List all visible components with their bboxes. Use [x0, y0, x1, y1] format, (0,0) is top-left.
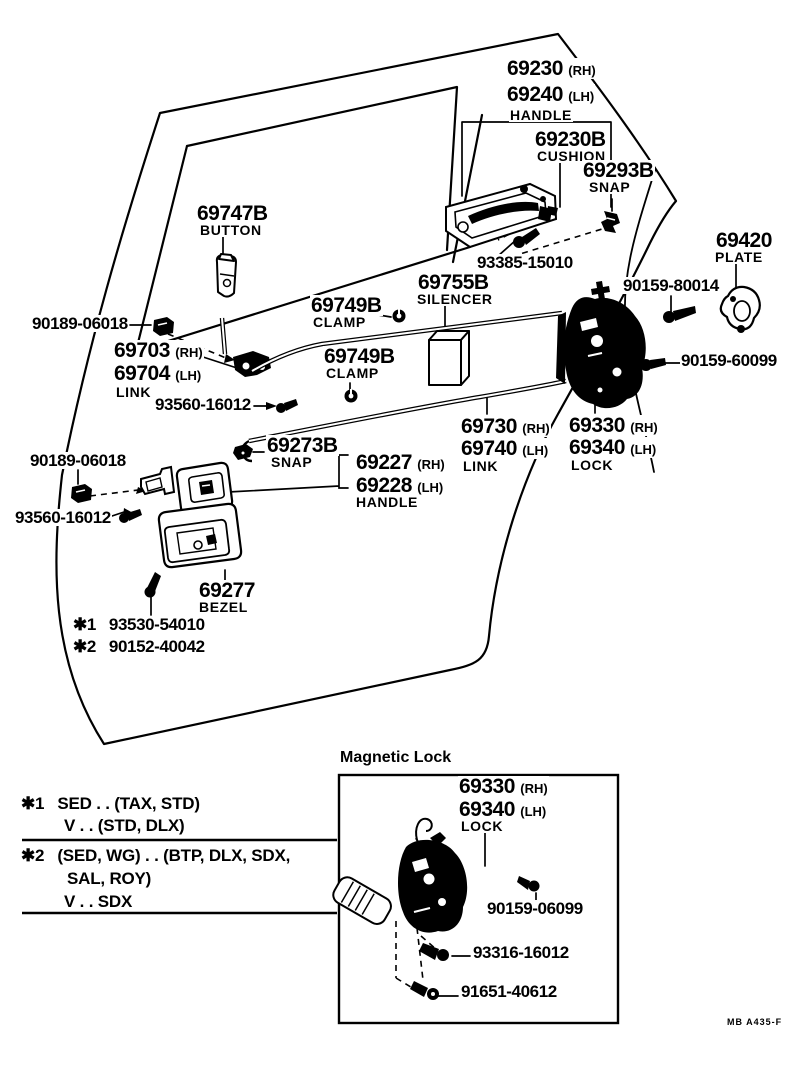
part-name-lock-2: LOCK	[460, 819, 504, 833]
legend-text: (SED, WG) . . (BTP, DLX, SDX,	[57, 846, 290, 865]
part-number: 69730	[461, 415, 517, 438]
side-suffix: (RH)	[568, 63, 595, 78]
part-number: 69330	[569, 414, 625, 437]
part-label-90189-06018-2: 90189-06018	[29, 452, 127, 469]
side-suffix: (LH)	[630, 442, 656, 457]
part-label-69730: 69730 (RH)	[460, 416, 551, 437]
side-suffix: (LH)	[520, 804, 546, 819]
screw-90159-60099-part	[640, 358, 666, 371]
part-label-90159-06099: 90159-06099	[486, 900, 584, 917]
part-number: 69704	[114, 362, 170, 385]
star-2-marker: ✱2	[73, 638, 96, 655]
part-label-69703: 69703 (RH)	[113, 340, 204, 361]
part-number: 93530-54010	[109, 615, 205, 634]
screw-93560-upper-part	[276, 399, 298, 413]
star-1-marker: ✱1	[73, 616, 96, 633]
inset-title: Magnetic Lock	[339, 750, 452, 766]
part-label-90189-06018-1: 90189-06018	[31, 315, 129, 332]
part-name-handle: HANDLE	[509, 108, 573, 122]
side-suffix: (RH)	[175, 345, 202, 360]
part-number: 69703	[114, 339, 170, 362]
part-label-93316-16012: 93316-16012	[472, 944, 570, 961]
part-name-clamp-1: CLAMP	[312, 315, 367, 329]
part-number: 90152-40042	[109, 637, 205, 656]
clamp-part-1	[393, 309, 406, 323]
part-label-69240: 69240 (LH)	[506, 84, 595, 105]
star-2-marker: ✱2	[21, 847, 44, 864]
part-label-91651-40612: 91651-40612	[460, 983, 558, 1000]
part-name-link-1: LINK	[115, 385, 152, 399]
nut-90189-lower-part	[71, 484, 92, 503]
part-label-69340: 69340 (LH)	[568, 437, 657, 458]
part-name-plate: PLATE	[714, 250, 764, 264]
side-suffix: (LH)	[568, 89, 594, 104]
bezel-part	[159, 504, 241, 567]
legend-row-1a: ✱1SED . . (TAX, STD)	[20, 795, 201, 812]
part-number: 69240	[507, 83, 563, 106]
part-name-silencer: SILENCER	[416, 292, 494, 306]
screw-91651-part	[410, 981, 439, 1000]
legend-row-2c: V . . SDX	[63, 893, 133, 910]
screw-star-part	[145, 572, 162, 598]
link-69703-part	[222, 318, 271, 377]
silencer-part	[429, 331, 469, 385]
part-label-69749B-1: 69749B	[310, 295, 383, 316]
part-label-69273B: 69273B	[266, 435, 339, 456]
part-label-69227: 69227 (RH)	[355, 452, 446, 473]
striker-plate-part	[721, 287, 760, 333]
screw-93560-lower-part	[119, 509, 142, 523]
part-number: 69340	[569, 436, 625, 459]
screw-90159-80014-part	[663, 306, 696, 323]
part-label-90159-80014: 90159-80014	[622, 277, 720, 294]
star-1-marker: ✱1	[21, 795, 44, 812]
part-label-69230: 69230 (RH)	[506, 58, 597, 79]
button-part	[217, 254, 236, 297]
part-name-bezel: BEZEL	[198, 600, 249, 614]
side-suffix: (LH)	[175, 368, 201, 383]
part-label-69420: 69420	[715, 230, 773, 251]
side-suffix: (RH)	[520, 781, 547, 796]
part-name-handle-2: HANDLE	[355, 495, 419, 509]
clamp-part-2	[345, 389, 358, 403]
nut-90189-upper-part	[153, 317, 174, 336]
part-number: 69227	[356, 451, 412, 474]
part-label-star2: ✱290152-40042	[72, 638, 206, 655]
legend-row-1b: V . . (STD, DLX)	[63, 817, 186, 834]
part-name-clamp-2: CLAMP	[325, 366, 380, 380]
part-label-69228: 69228 (LH)	[355, 475, 444, 496]
part-name-snap-2: SNAP	[270, 455, 313, 469]
side-suffix: (RH)	[417, 457, 444, 472]
side-suffix: (RH)	[630, 420, 657, 435]
part-number: 69740	[461, 437, 517, 460]
part-name-button: BUTTON	[199, 223, 263, 237]
part-label-69230B: 69230B	[534, 129, 607, 150]
parts-diagram-page: 69230 (RH) 69240 (LH) HANDLE 69230B CUSH…	[0, 0, 792, 1082]
page-code: MB A435-F	[726, 1018, 783, 1027]
part-number: 69330	[459, 775, 515, 798]
part-label-93560-16012-2: 93560-16012	[14, 509, 112, 526]
diagram-artwork	[0, 0, 792, 1082]
part-label-69330: 69330 (RH)	[568, 415, 659, 436]
legend-row-2b: SAL, ROY)	[66, 870, 152, 887]
side-suffix: (RH)	[522, 421, 549, 436]
rod-upper	[252, 313, 562, 371]
part-label-star1: ✱193530-54010	[72, 616, 206, 633]
part-label-69749B-2: 69749B	[323, 346, 396, 367]
part-label-93560-16012-1: 93560-16012	[154, 396, 252, 413]
part-label-69330-inset: 69330 (RH)	[458, 776, 549, 797]
part-name-lock-1: LOCK	[570, 458, 614, 472]
inset-lock-part	[330, 819, 467, 933]
part-label-69340-inset: 69340 (LH)	[458, 799, 547, 820]
side-suffix: (LH)	[417, 480, 443, 495]
part-label-93385-15010: 93385-15010	[476, 254, 574, 271]
legend-row-2a: ✱2(SED, WG) . . (BTP, DLX, SDX,	[20, 847, 291, 864]
part-label-90159-60099: 90159-60099	[680, 352, 778, 369]
snap-69273B-part	[233, 444, 253, 460]
part-label-69293B: 69293B	[582, 160, 655, 181]
screw-90159-06099-part	[517, 876, 540, 892]
part-label-69704: 69704 (LH)	[113, 363, 202, 384]
part-label-69755B: 69755B	[417, 272, 490, 293]
part-name-snap: SNAP	[588, 180, 631, 194]
part-label-69277: 69277	[198, 580, 256, 601]
part-number: 69230	[507, 57, 563, 80]
screw-93316-part	[419, 943, 449, 961]
lock-assembly-part	[556, 281, 646, 408]
legend-text: SED . . (TAX, STD)	[57, 794, 199, 813]
part-name-link-2: LINK	[462, 459, 499, 473]
side-suffix: (LH)	[522, 443, 548, 458]
part-label-69747B: 69747B	[196, 203, 269, 224]
part-label-69740: 69740 (LH)	[460, 438, 549, 459]
snap-69293B-part	[601, 211, 620, 233]
